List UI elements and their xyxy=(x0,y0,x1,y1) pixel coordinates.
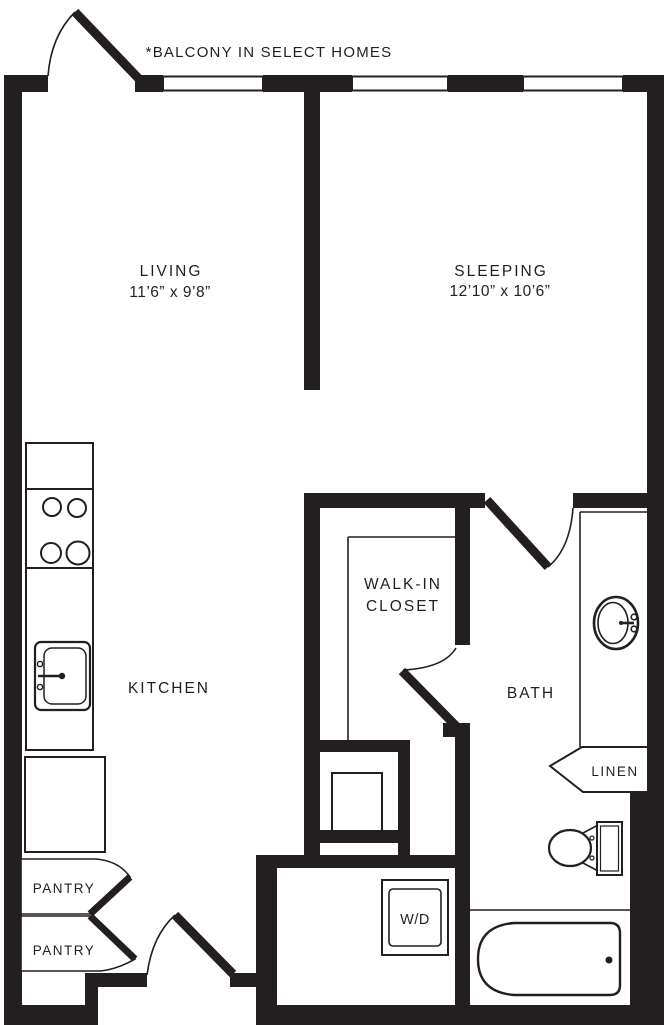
toilet-icon xyxy=(549,822,622,875)
wall-wd-top xyxy=(256,855,470,868)
wall-entry-left-jamb xyxy=(85,973,147,987)
wall-alcove-right xyxy=(398,752,410,868)
bath-door-leaf xyxy=(487,500,548,567)
wall-bottom-left xyxy=(4,1005,98,1025)
kitchen-fixtures xyxy=(25,443,105,852)
window-sleeping-2 xyxy=(523,77,623,91)
bath-label: BATH xyxy=(507,685,555,702)
linen-label: LINEN xyxy=(591,764,638,779)
wall-right-upper xyxy=(647,75,664,792)
wall-top-seg-3 xyxy=(448,75,523,92)
wall-bottom-right xyxy=(256,1005,664,1025)
bath-door-swing-arc xyxy=(548,508,573,567)
closet-door-swing-arc xyxy=(403,648,456,670)
wall-top-seg-2 xyxy=(263,75,352,92)
washer-dryer-label: W/D xyxy=(400,912,430,928)
balcony-door xyxy=(48,12,140,80)
walk-in-closet-label-line2: CLOSET xyxy=(366,598,440,615)
wall-entry-left-foot xyxy=(85,987,98,1005)
entry-door xyxy=(147,915,233,975)
closet-door-leaf xyxy=(402,671,456,726)
wall-sleeping-bottom-right xyxy=(573,493,648,508)
closet-door xyxy=(402,648,456,726)
entry-door-leaf xyxy=(175,915,233,974)
sleeping-room-dims: 12’10” x 10’6” xyxy=(450,283,551,300)
balcony-door-swing-arc xyxy=(48,12,75,76)
wall-closet-bottom xyxy=(304,740,410,752)
wall-sleeping-bottom-left xyxy=(304,493,485,508)
wall-right-lower xyxy=(630,792,664,1025)
kitchen-label: KITCHEN xyxy=(128,680,210,697)
living-room-dims: 11’6” x 9’8” xyxy=(129,284,211,301)
wall-entry-right-nub xyxy=(230,973,256,987)
wall-living-sleeping-divider xyxy=(304,91,320,390)
balcony-door-leaf xyxy=(75,12,140,80)
window-sleeping-1 xyxy=(352,77,448,91)
pantry-lower-label: PANTRY xyxy=(33,943,96,958)
mechanical-unit xyxy=(332,773,382,831)
pantry-upper-label: PANTRY xyxy=(33,881,96,896)
bathroom-sink-icon xyxy=(594,597,638,649)
window-living xyxy=(163,77,263,91)
floor-plan: *BALCONY IN SELECT HOMES LIVING 11’6” x … xyxy=(0,0,670,1025)
fridge xyxy=(25,757,105,852)
wall-bath-left xyxy=(455,737,470,1005)
windows xyxy=(163,77,623,91)
wall-entry-right xyxy=(256,868,277,1005)
bathtub-icon xyxy=(478,923,620,995)
closet-details xyxy=(21,537,648,971)
wall-closet-left xyxy=(304,508,320,868)
balcony-note: *BALCONY IN SELECT HOMES xyxy=(146,44,393,61)
walk-in-closet-label-line1: WALK-IN xyxy=(364,576,442,593)
wall-closet-right xyxy=(455,508,470,645)
living-room-label: LIVING xyxy=(140,263,203,280)
sleeping-room-label: SLEEPING xyxy=(454,263,548,280)
entry-door-swing-arc xyxy=(147,915,175,975)
wall-left xyxy=(4,75,22,1025)
bath-door xyxy=(487,500,573,567)
kitchen-sink-icon xyxy=(35,642,90,710)
